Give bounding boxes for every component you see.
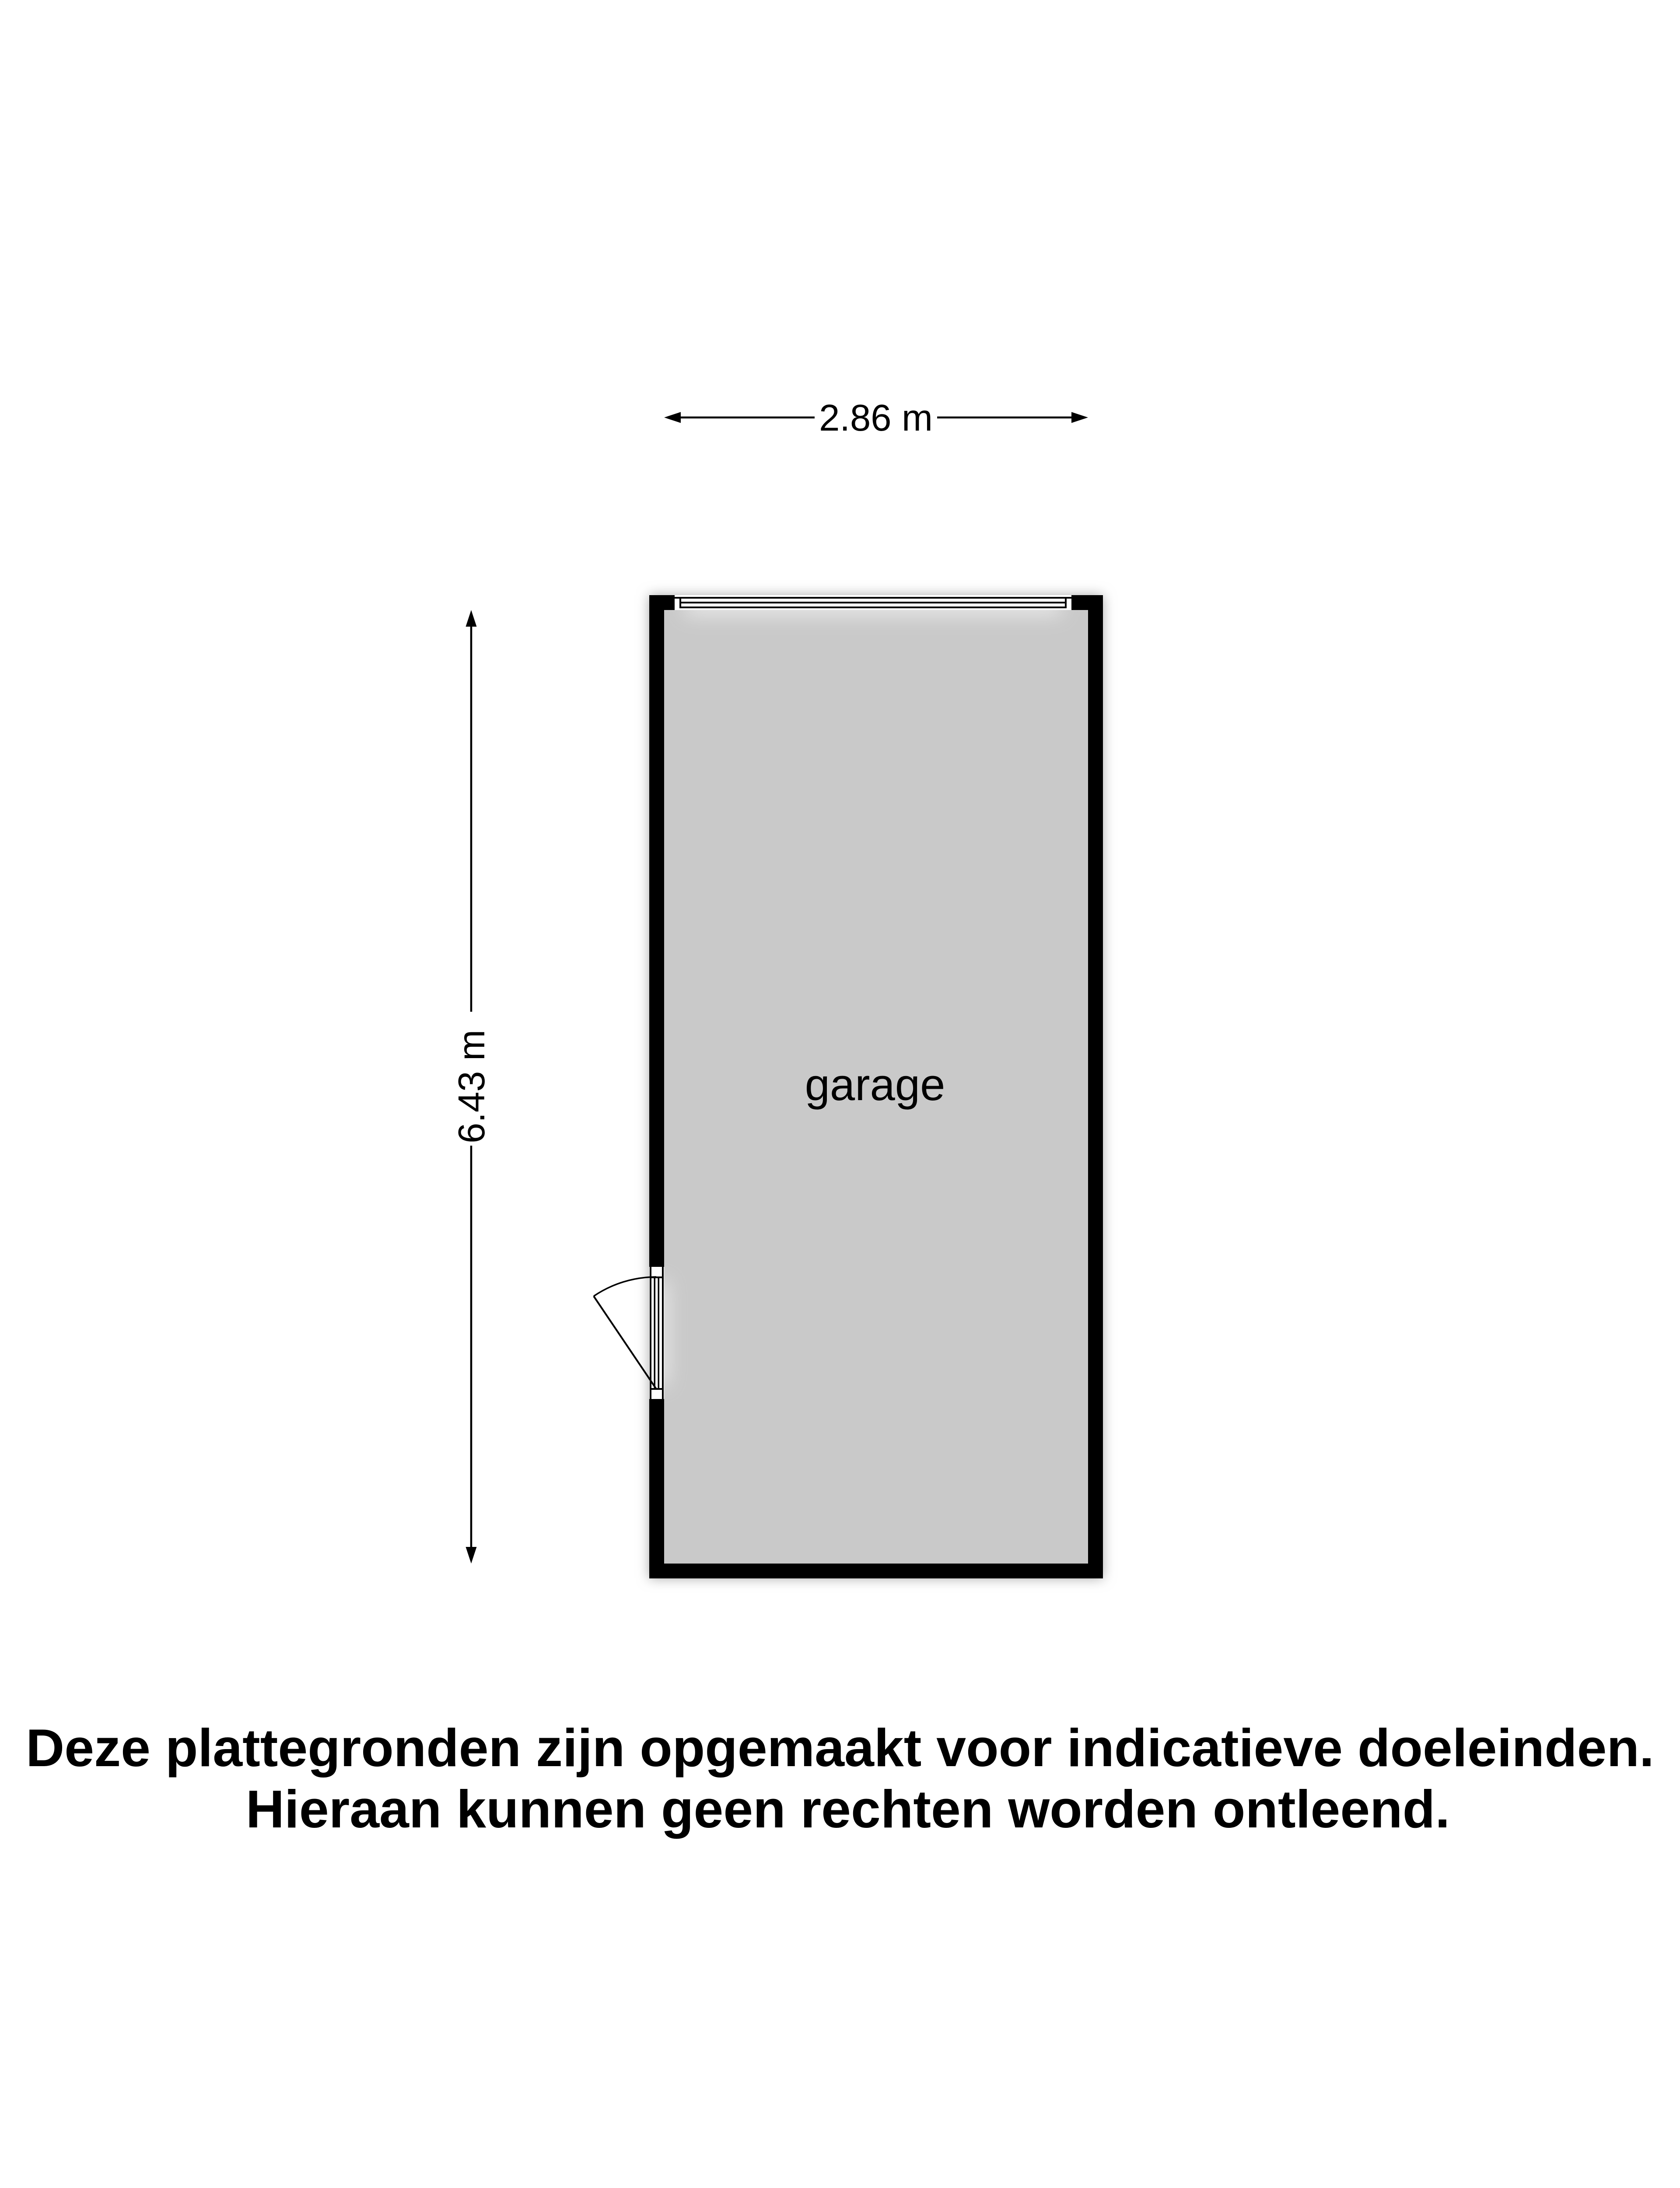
svg-text:Deze plattegronden zijn opgema: Deze plattegronden zijn opgemaakt voor i… — [26, 1718, 1654, 1778]
svg-text:Hieraan kunnen geen rechten wo: Hieraan kunnen geen rechten worden ontle… — [246, 1779, 1450, 1839]
svg-text:6.43 m: 6.43 m — [451, 1030, 493, 1143]
svg-text:2.86 m: 2.86 m — [819, 397, 933, 439]
svg-text:garage: garage — [805, 1059, 945, 1110]
